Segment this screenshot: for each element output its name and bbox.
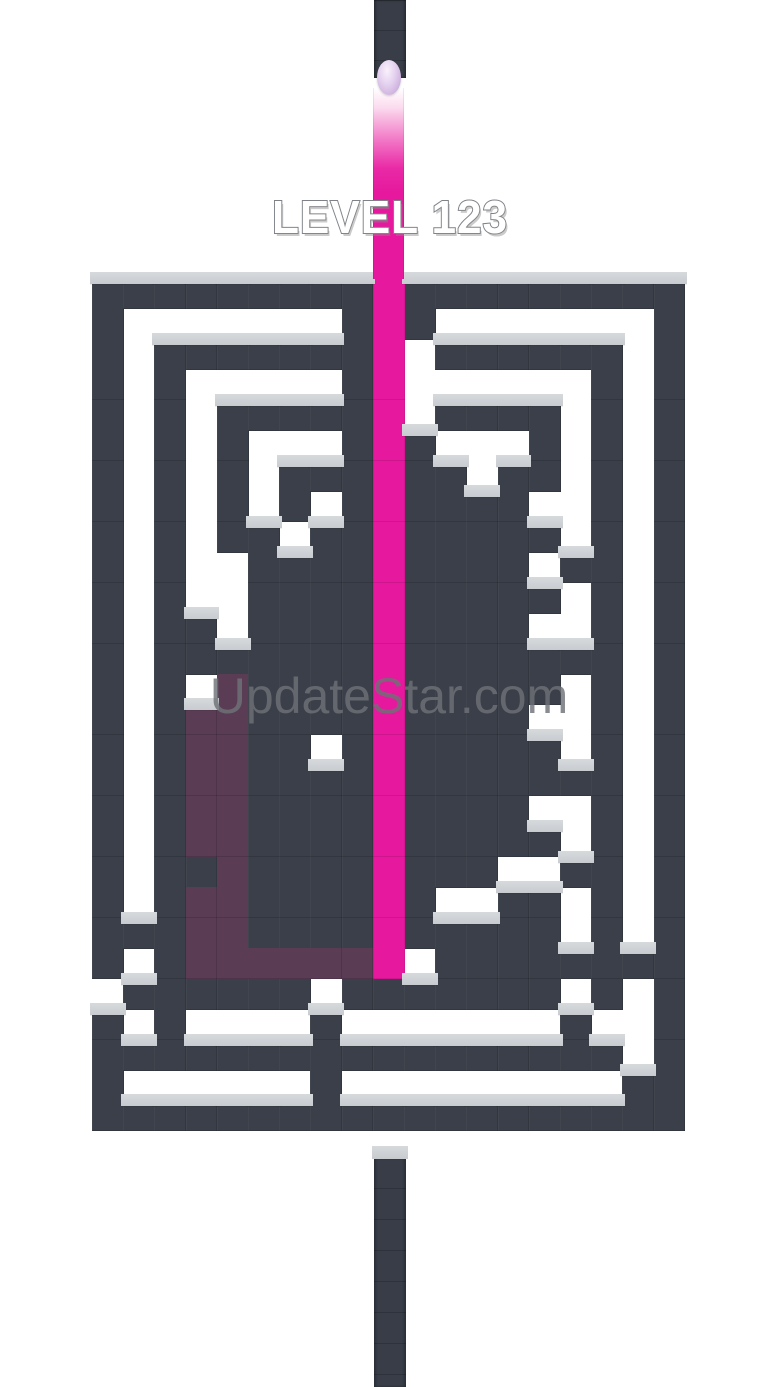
- wall-cell: [529, 979, 561, 1010]
- wall-cell: [498, 735, 530, 766]
- wall-cell: [654, 735, 686, 766]
- wall-cell: [154, 826, 186, 857]
- wall-cell: [92, 461, 124, 492]
- wall-cell: [622, 278, 654, 309]
- wall-top-cap: [558, 851, 594, 863]
- wall-cell: [435, 278, 467, 309]
- wall-cell: [92, 887, 124, 918]
- wall-cell: [92, 1040, 124, 1071]
- wall-cell: [498, 1040, 530, 1071]
- wall-cell: [498, 765, 530, 796]
- wall-cell: [466, 796, 498, 827]
- wall-top-cap: [90, 1003, 126, 1015]
- wall-cell: [123, 979, 155, 1010]
- wall-cell: [154, 887, 186, 918]
- wall-cell: [248, 339, 280, 370]
- wall-cell: [310, 826, 342, 857]
- wall-cell: [654, 430, 686, 461]
- pink-paint-cell: [373, 491, 405, 522]
- wall-cell: [498, 491, 530, 522]
- wall-cell: [154, 644, 186, 675]
- wall-cell: [248, 522, 280, 553]
- wall-cell: [404, 522, 436, 553]
- wall-cell: [279, 1100, 311, 1131]
- pink-paint-cell: [373, 613, 405, 644]
- wall-cell: [654, 796, 686, 827]
- wall-cell: [342, 857, 374, 888]
- wall-cell: [154, 979, 186, 1010]
- wall-cell: [92, 644, 124, 675]
- wall-cell: [404, 552, 436, 583]
- wall-cell: [498, 461, 530, 492]
- wall-cell: [154, 369, 186, 400]
- wall-cell: [622, 1100, 654, 1131]
- wall-cell: [279, 887, 311, 918]
- wall-cell: [92, 857, 124, 888]
- wall-cell: [654, 704, 686, 735]
- painted-cell: [186, 918, 218, 949]
- painted-cell: [217, 887, 249, 918]
- wall-cell: [560, 552, 592, 583]
- wall-cell: [498, 979, 530, 1010]
- wall-cell: [404, 613, 436, 644]
- painted-cell: [217, 948, 249, 979]
- wall-cell: [591, 522, 623, 553]
- wall-cell: [654, 918, 686, 949]
- wall-cell: [279, 826, 311, 857]
- wall-cell: [466, 400, 498, 431]
- pink-paint-cell: [373, 887, 405, 918]
- wall-cell: [435, 796, 467, 827]
- wall-cell: [435, 613, 467, 644]
- painted-cell: [248, 948, 280, 979]
- wall-cell: [186, 1100, 218, 1131]
- wall-cell: [466, 857, 498, 888]
- wall-cell: [654, 552, 686, 583]
- wall-cell: [435, 1040, 467, 1071]
- painted-cell: [186, 826, 218, 857]
- wall-top-cap: [527, 577, 563, 589]
- wall-cell: [154, 613, 186, 644]
- wall-cell: [435, 522, 467, 553]
- wall-cell: [498, 887, 530, 918]
- wall-cell: [186, 979, 218, 1010]
- wall-cell: [654, 1040, 686, 1071]
- wall-cell: [404, 796, 436, 827]
- wall-cell: [342, 583, 374, 614]
- wall-cell: [529, 918, 561, 949]
- wall-top-cap: [121, 973, 157, 985]
- wall-cell: [342, 430, 374, 461]
- wall-top-cap: [340, 272, 376, 284]
- wall-cell: [560, 1009, 592, 1040]
- wall-cell: [92, 583, 124, 614]
- wall-cell: [217, 979, 249, 1010]
- wall-cell: [217, 522, 249, 553]
- wall-cell: [560, 857, 592, 888]
- wall-cell: [217, 339, 249, 370]
- wall-cell: [92, 1009, 124, 1040]
- wall-cell: [279, 339, 311, 370]
- wall-cell: [154, 674, 186, 705]
- wall-cell: [279, 979, 311, 1010]
- wall-cell: [498, 583, 530, 614]
- wall-cell: [498, 918, 530, 949]
- painted-cell: [217, 735, 249, 766]
- wall-cell: [435, 1100, 467, 1131]
- wall-top-cap: [620, 942, 656, 954]
- wall-cell: [498, 339, 530, 370]
- wall-top-cap: [308, 394, 344, 406]
- wall-cell: [435, 491, 467, 522]
- wall-cell: [217, 1040, 249, 1071]
- wall-top-cap: [433, 455, 469, 467]
- wall-cell: [498, 1100, 530, 1131]
- wall-cell: [92, 339, 124, 370]
- wall-cell: [92, 765, 124, 796]
- wall-cell: [529, 339, 561, 370]
- pink-paint-cell: [373, 278, 405, 309]
- wall-cell: [654, 1100, 686, 1131]
- wall-top-cap: [652, 272, 688, 284]
- wall-cell: [217, 461, 249, 492]
- wall-cell: [342, 461, 374, 492]
- wall-top-cap: [527, 881, 563, 893]
- pink-paint-cell: [373, 461, 405, 492]
- wall-cell: [92, 369, 124, 400]
- wall-cell: [404, 430, 436, 461]
- wall-top-cap: [121, 1034, 157, 1046]
- wall-cell: [404, 491, 436, 522]
- wall-cell: [154, 491, 186, 522]
- painted-cell: [186, 796, 218, 827]
- wall-cell: [310, 278, 342, 309]
- wall-cell: [92, 704, 124, 735]
- pink-paint-cell: [373, 583, 405, 614]
- wall-cell: [404, 583, 436, 614]
- wall-cell: [154, 765, 186, 796]
- wall-cell: [654, 400, 686, 431]
- pink-paint-cell: [373, 522, 405, 553]
- wall-cell: [591, 826, 623, 857]
- wall-cell: [435, 857, 467, 888]
- wall-cell: [466, 826, 498, 857]
- wall-cell: [248, 826, 280, 857]
- wall-cell: [466, 735, 498, 766]
- painted-cell: [186, 765, 218, 796]
- wall-cell: [248, 765, 280, 796]
- wall-cell: [622, 948, 654, 979]
- wall-cell: [310, 796, 342, 827]
- wall-top-cap: [308, 455, 344, 467]
- wall-cell: [248, 979, 280, 1010]
- painted-cell: [217, 857, 249, 888]
- wall-cell: [154, 1040, 186, 1071]
- wall-cell: [404, 887, 436, 918]
- wall-cell: [654, 857, 686, 888]
- wall-cell: [591, 674, 623, 705]
- wall-cell: [310, 522, 342, 553]
- wall-top-cap: [402, 424, 438, 436]
- wall-cell: [154, 735, 186, 766]
- wall-cell: [404, 461, 436, 492]
- wall-cell: [404, 765, 436, 796]
- wall-cell: [92, 1100, 124, 1131]
- wall-cell: [217, 430, 249, 461]
- wall-cell: [248, 918, 280, 949]
- painted-cell: [342, 948, 374, 979]
- wall-cell: [529, 1040, 561, 1071]
- wall-cell: [373, 1040, 405, 1071]
- wall-cell: [154, 857, 186, 888]
- pink-paint-cell: [373, 796, 405, 827]
- wall-cell: [279, 613, 311, 644]
- exit-channel-cap: [372, 1146, 408, 1159]
- wall-cell: [248, 583, 280, 614]
- wall-cell: [123, 1100, 155, 1131]
- wall-cell: [123, 1040, 155, 1071]
- wall-cell: [654, 826, 686, 857]
- wall-top-cap: [527, 516, 563, 528]
- wall-cell: [154, 1100, 186, 1131]
- wall-cell: [186, 339, 218, 370]
- wall-cell: [404, 826, 436, 857]
- wall-top-cap: [589, 333, 625, 345]
- painted-cell: [217, 765, 249, 796]
- wall-cell: [217, 1100, 249, 1131]
- wall-cell: [186, 278, 218, 309]
- wall-cell: [92, 278, 124, 309]
- wall-cell: [466, 522, 498, 553]
- wall-cell: [466, 583, 498, 614]
- painted-cell: [310, 948, 342, 979]
- wall-cell: [342, 765, 374, 796]
- wall-cell: [310, 887, 342, 918]
- wall-top-cap: [184, 607, 220, 619]
- wall-cell: [92, 400, 124, 431]
- wall-cell: [154, 583, 186, 614]
- wall-cell: [529, 887, 561, 918]
- wall-cell: [92, 918, 124, 949]
- painted-cell: [217, 918, 249, 949]
- wall-cell: [373, 1100, 405, 1131]
- wall-cell: [591, 887, 623, 918]
- wall-cell: [92, 1070, 124, 1101]
- wall-cell: [248, 552, 280, 583]
- wall-cell: [310, 552, 342, 583]
- wall-cell: [92, 826, 124, 857]
- wall-cell: [435, 948, 467, 979]
- wall-cell: [342, 887, 374, 918]
- wall-cell: [248, 887, 280, 918]
- wall-cell: [466, 339, 498, 370]
- wall-cell: [342, 278, 374, 309]
- wall-cell: [591, 918, 623, 949]
- wall-cell: [154, 918, 186, 949]
- wall-cell: [591, 583, 623, 614]
- wall-cell: [404, 1100, 436, 1131]
- wall-cell: [279, 400, 311, 431]
- wall-cell: [279, 552, 311, 583]
- pink-paint-cell: [373, 430, 405, 461]
- wall-cell: [591, 400, 623, 431]
- wall-cell: [591, 979, 623, 1010]
- maze-exit-channel: [374, 1158, 406, 1387]
- wall-cell: [279, 583, 311, 614]
- wall-cell: [154, 522, 186, 553]
- wall-cell: [310, 613, 342, 644]
- wall-cell: [654, 461, 686, 492]
- wall-cell: [342, 400, 374, 431]
- wall-cell: [279, 735, 311, 766]
- wall-cell: [498, 613, 530, 644]
- wall-cell: [279, 918, 311, 949]
- wall-cell: [529, 948, 561, 979]
- wall-cell: [92, 796, 124, 827]
- wall-cell: [342, 308, 374, 339]
- pink-paint-cell: [373, 339, 405, 370]
- wall-cell: [498, 552, 530, 583]
- wall-cell: [529, 522, 561, 553]
- wall-cell: [310, 461, 342, 492]
- wall-cell: [154, 552, 186, 583]
- wall-top-cap: [527, 394, 563, 406]
- wall-cell: [373, 979, 405, 1010]
- paint-ball-icon: [377, 60, 401, 95]
- paint-beam: [373, 88, 404, 279]
- wall-cell: [279, 765, 311, 796]
- wall-cell: [435, 735, 467, 766]
- wall-cell: [404, 979, 436, 1010]
- wall-cell: [654, 339, 686, 370]
- wall-cell: [310, 1100, 342, 1131]
- wall-cell: [654, 369, 686, 400]
- wall-cell: [404, 278, 436, 309]
- wall-cell: [560, 1040, 592, 1071]
- wall-cell: [591, 430, 623, 461]
- pink-paint-cell: [373, 735, 405, 766]
- pink-paint-cell: [373, 826, 405, 857]
- wall-cell: [248, 400, 280, 431]
- wall-cell: [654, 308, 686, 339]
- wall-cell: [591, 461, 623, 492]
- wall-cell: [622, 1070, 654, 1101]
- wall-cell: [310, 339, 342, 370]
- wall-cell: [591, 735, 623, 766]
- level-label: LEVEL 123: [272, 190, 508, 244]
- wall-top-cap: [527, 729, 563, 741]
- wall-cell: [591, 796, 623, 827]
- wall-cell: [591, 1040, 623, 1071]
- wall-cell: [591, 704, 623, 735]
- wall-cell: [529, 400, 561, 431]
- wall-cell: [123, 278, 155, 309]
- wall-cell: [654, 522, 686, 553]
- wall-cell: [404, 308, 436, 339]
- wall-cell: [560, 278, 592, 309]
- wall-cell: [92, 552, 124, 583]
- wall-cell: [560, 1100, 592, 1131]
- wall-cell: [310, 1040, 342, 1071]
- painted-cell: [186, 948, 218, 979]
- wall-top-cap: [527, 820, 563, 832]
- wall-top-cap: [121, 912, 157, 924]
- wall-cell: [92, 948, 124, 979]
- wall-cell: [92, 491, 124, 522]
- wall-cell: [310, 918, 342, 949]
- wall-cell: [529, 765, 561, 796]
- wall-cell: [92, 308, 124, 339]
- wall-top-cap: [277, 1094, 313, 1106]
- wall-cell: [591, 644, 623, 675]
- wall-cell: [654, 979, 686, 1010]
- wall-cell: [248, 278, 280, 309]
- wall-cell: [466, 1100, 498, 1131]
- wall-cell: [654, 613, 686, 644]
- wall-cell: [248, 1040, 280, 1071]
- wall-cell: [498, 400, 530, 431]
- wall-cell: [529, 430, 561, 461]
- wall-top-cap: [558, 942, 594, 954]
- wall-top-cap: [215, 638, 251, 650]
- game-canvas[interactable]: LEVEL 123 UpdateStar.com: [0, 0, 780, 1387]
- wall-cell: [435, 461, 467, 492]
- wall-cell: [404, 1040, 436, 1071]
- wall-top-cap: [402, 973, 438, 985]
- wall-cell: [310, 400, 342, 431]
- wall-cell: [466, 552, 498, 583]
- wall-cell: [435, 765, 467, 796]
- wall-cell: [529, 461, 561, 492]
- wall-cell: [217, 400, 249, 431]
- wall-top-cap: [496, 455, 532, 467]
- wall-cell: [279, 1040, 311, 1071]
- wall-cell: [154, 430, 186, 461]
- wall-cell: [248, 613, 280, 644]
- wall-cell: [404, 735, 436, 766]
- pink-paint-cell: [373, 857, 405, 888]
- wall-cell: [186, 857, 218, 888]
- wall-cell: [466, 613, 498, 644]
- wall-cell: [466, 918, 498, 949]
- wall-cell: [498, 522, 530, 553]
- wall-cell: [435, 826, 467, 857]
- wall-cell: [342, 735, 374, 766]
- wall-cell: [342, 339, 374, 370]
- wall-top-cap: [558, 759, 594, 771]
- wall-top-cap: [277, 1034, 313, 1046]
- wall-cell: [591, 613, 623, 644]
- wall-cell: [435, 583, 467, 614]
- wall-cell: [342, 491, 374, 522]
- wall-top-cap: [589, 1034, 625, 1046]
- wall-cell: [92, 613, 124, 644]
- wall-cell: [435, 339, 467, 370]
- wall-cell: [591, 552, 623, 583]
- wall-cell: [310, 583, 342, 614]
- wall-cell: [654, 491, 686, 522]
- watermark: UpdateStar.com: [210, 667, 569, 725]
- wall-top-cap: [527, 1034, 563, 1046]
- pink-paint-cell: [373, 400, 405, 431]
- wall-cell: [435, 400, 467, 431]
- wall-cell: [123, 918, 155, 949]
- wall-cell: [342, 918, 374, 949]
- wall-cell: [342, 522, 374, 553]
- wall-cell: [248, 796, 280, 827]
- wall-cell: [654, 765, 686, 796]
- wall-cell: [154, 1009, 186, 1040]
